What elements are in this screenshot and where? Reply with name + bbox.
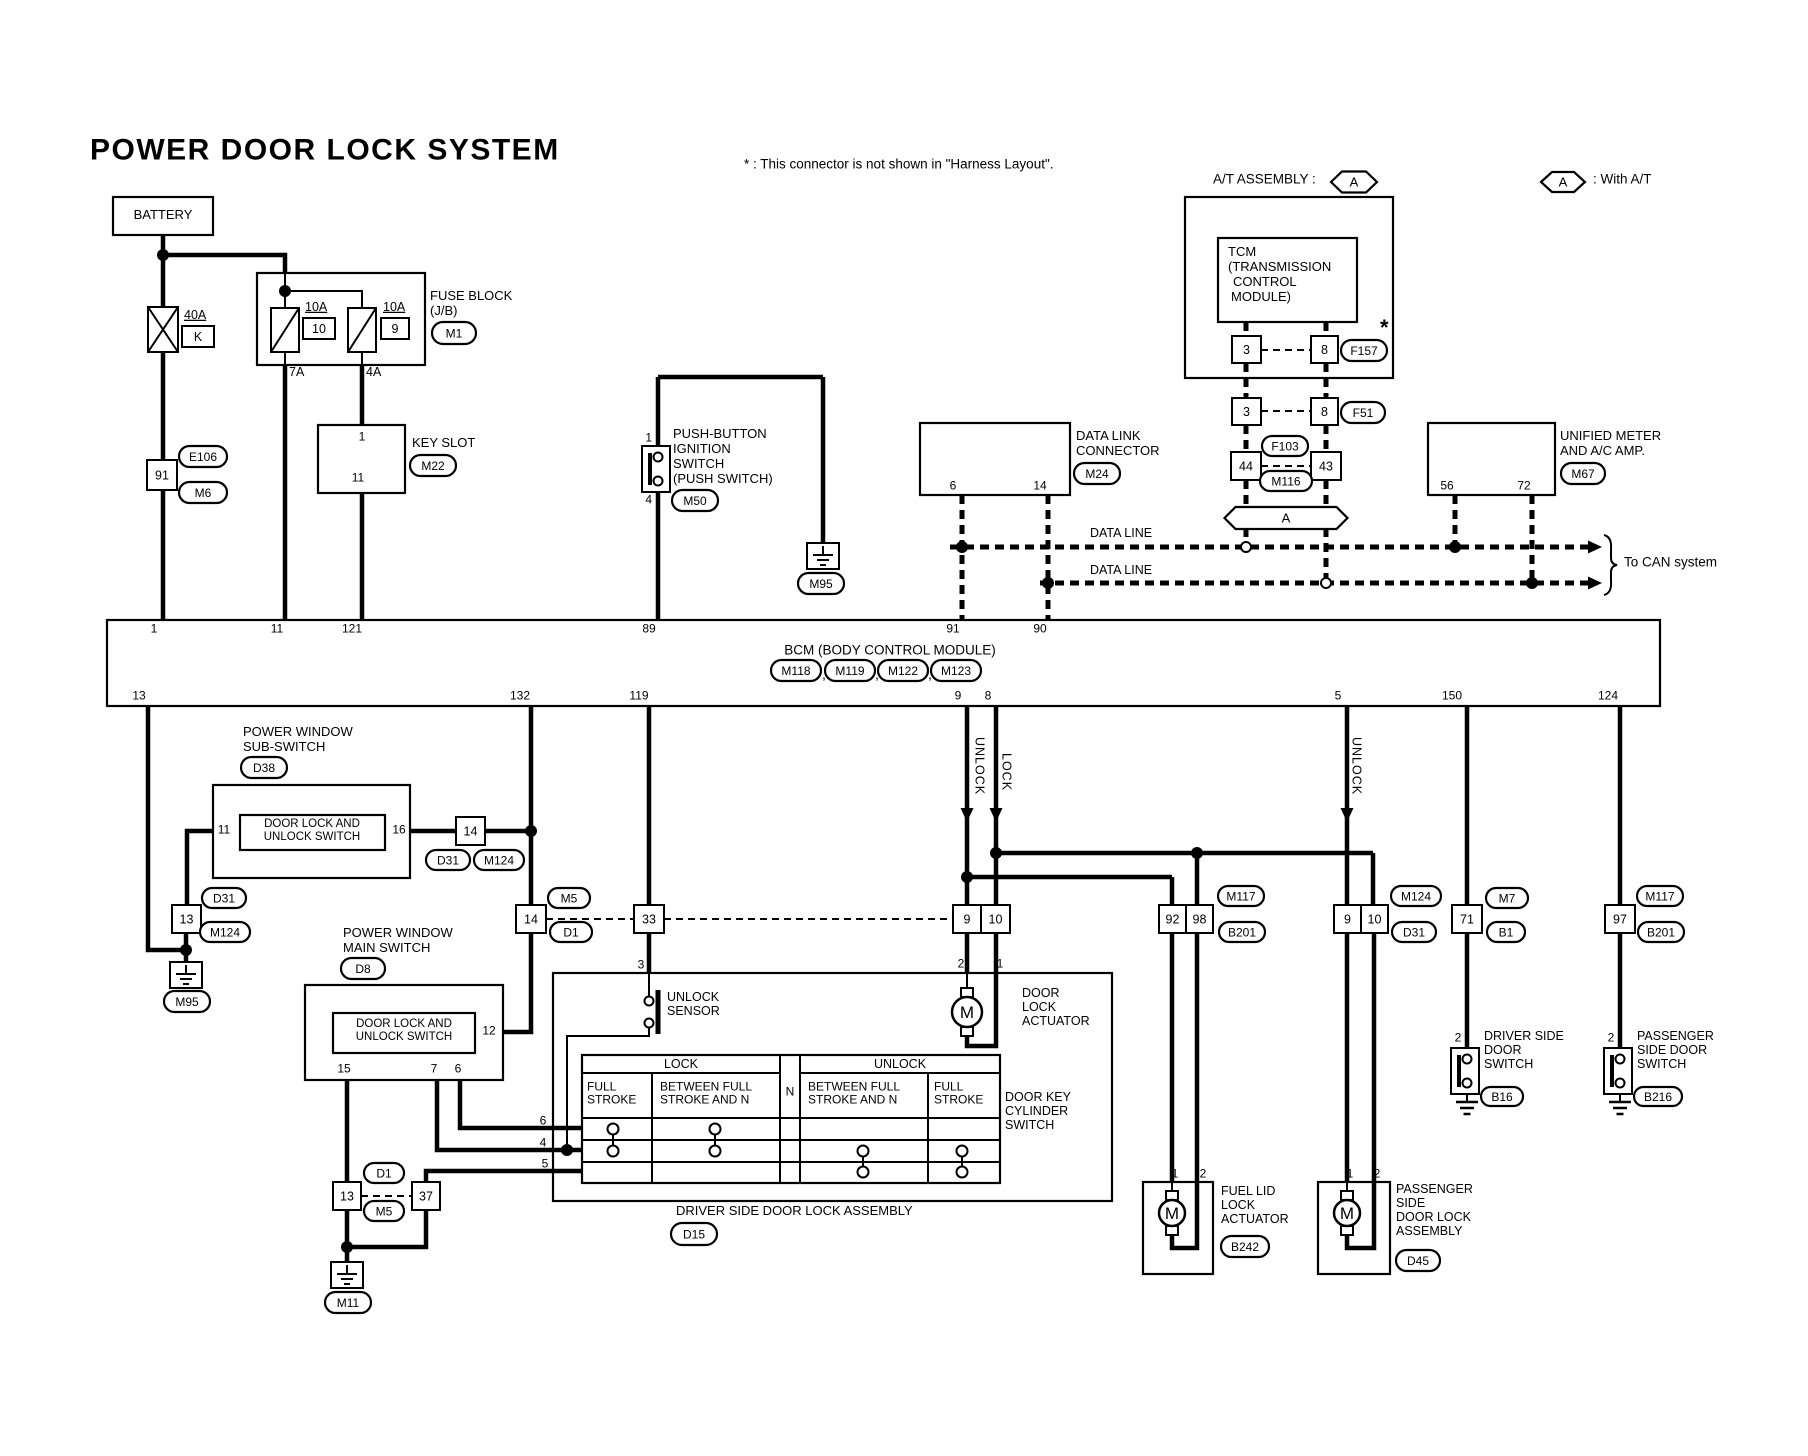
junction-dot-8 bbox=[956, 541, 968, 553]
text-49: STROKE bbox=[587, 1092, 636, 1106]
pin-box-label-43: 43 bbox=[1319, 460, 1333, 474]
connector-label-D45: D45 bbox=[1407, 1254, 1429, 1268]
connector-label-M117: M117 bbox=[1645, 890, 1674, 904]
text-99: 11 bbox=[218, 822, 231, 836]
wiring-diagram-page: K109913838444314131433910929891071971337… bbox=[0, 0, 1808, 1456]
text-40: UNLOCK SWITCH bbox=[356, 1031, 452, 1043]
battery-label: BATTERY bbox=[134, 207, 193, 222]
can-joint-2 bbox=[1321, 578, 1331, 588]
junction-dot-7 bbox=[1191, 847, 1203, 859]
passenger-door-lock-motor-label: M bbox=[1340, 1204, 1354, 1223]
text-56: STROKE bbox=[934, 1092, 983, 1106]
connector-label-M11: M11 bbox=[337, 1296, 360, 1310]
connector-label-M5: M5 bbox=[376, 1205, 393, 1219]
text-109: 4 bbox=[540, 1135, 547, 1149]
text-114: 2 bbox=[1374, 1166, 1381, 1180]
connector-label-M67: M67 bbox=[1571, 467, 1595, 481]
text-107: 1 bbox=[997, 956, 1004, 970]
arrow-right-3 bbox=[1588, 541, 1602, 554]
unlock-sensor-contact-2 bbox=[645, 1019, 654, 1028]
connector-label-D1: D1 bbox=[376, 1167, 392, 1181]
text-81: 91 bbox=[946, 621, 960, 635]
text-23: CONNECTOR bbox=[1076, 443, 1160, 458]
footnote: * : This connector is not shown in "Harn… bbox=[744, 157, 1054, 172]
pin-box-label-13: 13 bbox=[340, 1190, 354, 1204]
text-9: 10A bbox=[383, 300, 406, 314]
text-47: UNLOCK bbox=[874, 1057, 927, 1071]
text-89: 150 bbox=[1442, 688, 1462, 702]
text-88: 5 bbox=[1335, 688, 1342, 702]
connector-label-M117: M117 bbox=[1226, 890, 1255, 904]
pin-box-label-97: 97 bbox=[1613, 913, 1627, 927]
text-64: PASSENGER bbox=[1396, 1182, 1473, 1196]
text-44: LOCK bbox=[1022, 1000, 1057, 1014]
connector-label-M119: M119 bbox=[835, 664, 864, 678]
passenger-door-lock-motor-terminal-top bbox=[1341, 1191, 1353, 1200]
text-93: 1 bbox=[645, 430, 652, 444]
junction-dot-9 bbox=[1042, 577, 1054, 589]
bcm-label: BCM (BODY CONTROL MODULE) bbox=[784, 643, 996, 658]
connector-label-M123: M123 bbox=[941, 664, 971, 678]
data-link-connector-box bbox=[920, 423, 1070, 495]
push-button-ignition-switch-contact-2 bbox=[654, 477, 663, 486]
text-86: 9 bbox=[955, 688, 962, 702]
text-63: ACTUATOR bbox=[1221, 1212, 1289, 1226]
connector-label-M5: M5 bbox=[561, 892, 578, 906]
text-101: 12 bbox=[482, 1023, 496, 1037]
text-12: KEY SLOT bbox=[412, 435, 475, 450]
contact-circle-11 bbox=[957, 1167, 968, 1178]
pin-box-label-44: 44 bbox=[1239, 460, 1253, 474]
text-27: DATA LINE bbox=[1090, 563, 1152, 577]
text-42: SENSOR bbox=[667, 1004, 720, 1018]
at-hexagon-legend-label: A bbox=[1559, 175, 1568, 190]
connector-label-B201: B201 bbox=[1228, 926, 1256, 940]
text-33: POWER WINDOW bbox=[243, 724, 353, 739]
text-108: 6 bbox=[540, 1113, 547, 1127]
text-69: DOOR bbox=[1484, 1043, 1522, 1057]
diagram-canvas: K109913838444314131433910929891071971337… bbox=[0, 0, 1808, 1456]
pin-box-label-92: 92 bbox=[1166, 913, 1180, 927]
pin-box-label-10: 10 bbox=[989, 913, 1003, 927]
pin-box-label-37: 37 bbox=[419, 1190, 433, 1204]
driver-side-door-switch-contact-1 bbox=[1463, 1055, 1472, 1064]
wire-78 bbox=[460, 1080, 582, 1128]
connector-label-E106: E106 bbox=[189, 450, 217, 464]
text-105: 3 bbox=[638, 957, 645, 971]
text-11: 4A bbox=[366, 365, 382, 379]
wire-79 bbox=[426, 1171, 582, 1182]
text-18: (TRANSMISSION bbox=[1228, 259, 1331, 274]
text-43: DOOR bbox=[1022, 986, 1060, 1000]
connector-label-F51: F51 bbox=[1353, 406, 1374, 420]
pin-box-label-33: 33 bbox=[642, 913, 656, 927]
pin-box-label-3: 3 bbox=[1243, 343, 1250, 357]
text-53: BETWEEN FULL bbox=[808, 1079, 900, 1093]
text-34: SUB-SWITCH bbox=[243, 739, 325, 754]
pin-box-label-10: 10 bbox=[312, 322, 326, 336]
text-46: LOCK bbox=[664, 1057, 699, 1071]
contact-circle-7 bbox=[710, 1146, 721, 1157]
pin-box-label-98: 98 bbox=[1193, 913, 1207, 927]
connector-label-M50: M50 bbox=[683, 494, 707, 508]
text-48: FULL bbox=[587, 1079, 617, 1093]
arrow-right-4 bbox=[1588, 577, 1602, 590]
contact-circle-9 bbox=[957, 1146, 968, 1157]
text-90: 124 bbox=[1598, 688, 1618, 702]
connector-label-D1: D1 bbox=[563, 926, 579, 940]
text-15: SWITCH bbox=[673, 456, 724, 471]
pin-box-label-13: 13 bbox=[180, 913, 194, 927]
connector-label-M7: M7 bbox=[1499, 892, 1516, 906]
connector-label-D15: D15 bbox=[683, 1228, 705, 1242]
text-115: 2 bbox=[1455, 1030, 1462, 1044]
text-6: (J/B) bbox=[430, 303, 457, 318]
pin-box-label-91: 91 bbox=[155, 469, 169, 483]
text-84: 132 bbox=[510, 688, 530, 702]
connector-label-M118: M118 bbox=[781, 664, 810, 678]
pin-box-label-14: 14 bbox=[524, 913, 538, 927]
text-59: SWITCH bbox=[1005, 1118, 1054, 1132]
connector-label-B1: B1 bbox=[1499, 926, 1514, 940]
text-36: UNLOCK SWITCH bbox=[264, 831, 360, 843]
text-10: 7A bbox=[289, 365, 305, 379]
text-25: AND A/C AMP. bbox=[1560, 443, 1645, 458]
text-35: DOOR LOCK AND bbox=[264, 818, 360, 830]
connector-label-B216: B216 bbox=[1644, 1090, 1672, 1104]
arrow-down-1 bbox=[990, 808, 1003, 822]
at-hexagon-caption-label: A bbox=[1350, 175, 1359, 190]
text-85: 119 bbox=[629, 688, 648, 702]
text-77: 1 bbox=[151, 621, 158, 635]
text-113: 1 bbox=[1347, 1166, 1354, 1180]
junction-dot-10 bbox=[1449, 541, 1461, 553]
text-80: 89 bbox=[642, 621, 656, 635]
text-104: 6 bbox=[455, 1061, 462, 1075]
text-91: 1 bbox=[359, 429, 366, 443]
connector-label-M124: M124 bbox=[210, 926, 240, 940]
text-37: POWER WINDOW bbox=[343, 925, 453, 940]
junction-dot-1 bbox=[279, 285, 291, 297]
connector-label-M122: M122 bbox=[888, 664, 918, 678]
unlock-wire-label-2: UNLOCK bbox=[1349, 737, 1363, 795]
text-14: IGNITION bbox=[673, 441, 731, 456]
text-31: , bbox=[875, 666, 879, 682]
pin-box-label-9: 9 bbox=[392, 322, 399, 336]
text-13: PUSH-BUTTON bbox=[673, 426, 767, 441]
connector-label-B16: B16 bbox=[1491, 1090, 1513, 1104]
connector-label-M22: M22 bbox=[421, 459, 445, 473]
text-112: 2 bbox=[1200, 1166, 1207, 1180]
driver-door-lock-motor-terminal-bottom bbox=[961, 1027, 973, 1036]
text-65: SIDE bbox=[1396, 1196, 1425, 1210]
lock-wire-label: LOCK bbox=[999, 753, 1013, 791]
connector-label-M116: M116 bbox=[1271, 475, 1300, 489]
connector-label-M24: M24 bbox=[1085, 467, 1109, 481]
text-67: ASSEMBLY bbox=[1396, 1224, 1463, 1238]
connector-label-M1: M1 bbox=[446, 327, 463, 341]
text-50: BETWEEN FULL bbox=[660, 1079, 752, 1093]
connector-label-M95: M95 bbox=[175, 995, 199, 1009]
junction-dot-4 bbox=[341, 1241, 353, 1253]
text-7: 40A bbox=[184, 308, 207, 322]
text-55: FULL bbox=[934, 1079, 964, 1093]
text-57: DOOR KEY bbox=[1005, 1090, 1072, 1104]
unlock-sensor-contact-1 bbox=[645, 997, 654, 1006]
connector-label-M124: M124 bbox=[484, 854, 514, 868]
fuel-lid-lock-motor-label: M bbox=[1165, 1204, 1179, 1223]
contact-circle-8 bbox=[858, 1146, 869, 1157]
text-103: 7 bbox=[431, 1061, 438, 1075]
connector-label-D38: D38 bbox=[253, 761, 275, 775]
text-73: SWITCH bbox=[1637, 1057, 1686, 1071]
contact-circle-4 bbox=[608, 1124, 619, 1135]
contact-circle-6 bbox=[608, 1146, 619, 1157]
contact-circle-5 bbox=[710, 1124, 721, 1135]
text-82: 90 bbox=[1033, 621, 1047, 635]
connector-label-D31: D31 bbox=[1403, 926, 1425, 940]
text-5: FUSE BLOCK bbox=[430, 288, 513, 303]
text-111: 1 bbox=[1172, 1166, 1179, 1180]
contact-circle-10 bbox=[858, 1167, 869, 1178]
arrow-down-0 bbox=[961, 808, 974, 822]
connector-label-M95: M95 bbox=[809, 577, 833, 591]
wire-3 bbox=[163, 255, 285, 273]
text-30: , bbox=[822, 666, 826, 682]
text-28: To CAN system bbox=[1624, 555, 1717, 570]
fuel-lid-lock-motor-terminal-top bbox=[1166, 1191, 1178, 1200]
text-45: ACTUATOR bbox=[1022, 1014, 1090, 1028]
text-95: 6 bbox=[950, 478, 957, 492]
junction-dot-2 bbox=[525, 825, 537, 837]
junction-dot-11 bbox=[1526, 577, 1538, 589]
text-100: 16 bbox=[392, 822, 406, 836]
text-70: SWITCH bbox=[1484, 1057, 1533, 1071]
text-94: 4 bbox=[645, 492, 652, 506]
passenger-side-door-switch-contact-2 bbox=[1616, 1079, 1625, 1088]
junction-dot-0 bbox=[157, 249, 169, 261]
text-51: STROKE AND N bbox=[660, 1092, 749, 1106]
text-87: 8 bbox=[985, 688, 992, 702]
at-assembly-caption: A/T ASSEMBLY : bbox=[1213, 172, 1316, 187]
text-97: 56 bbox=[1440, 478, 1454, 492]
text-92: 11 bbox=[352, 470, 365, 484]
pin-box-label-9: 9 bbox=[964, 913, 971, 927]
text-58: CYLINDER bbox=[1005, 1104, 1068, 1118]
text-17: TCM bbox=[1228, 244, 1256, 259]
push-button-ignition-switch-contact-1 bbox=[654, 453, 663, 462]
connector-label-B242: B242 bbox=[1231, 1240, 1259, 1254]
pin-box-label-14: 14 bbox=[464, 825, 478, 839]
text-102: 15 bbox=[337, 1061, 351, 1075]
text-62: LOCK bbox=[1221, 1198, 1256, 1212]
text-41: UNLOCK bbox=[667, 990, 720, 1004]
page-title: POWER DOOR LOCK SYSTEM bbox=[90, 133, 560, 166]
text-71: PASSENGER bbox=[1637, 1029, 1714, 1043]
wire-40 bbox=[503, 933, 531, 1032]
arrow-down-2 bbox=[1341, 808, 1354, 822]
pin-box-label-9: 9 bbox=[1344, 913, 1351, 927]
driver-side-door-switch-contact-2 bbox=[1463, 1079, 1472, 1088]
passenger-door-lock-motor-terminal-bottom bbox=[1341, 1226, 1353, 1235]
text-52: N bbox=[786, 1084, 795, 1098]
junction-dot-6 bbox=[961, 871, 973, 883]
text-72: SIDE DOOR bbox=[1637, 1043, 1707, 1057]
connector-label-D31: D31 bbox=[437, 854, 459, 868]
text-8: 10A bbox=[305, 300, 328, 314]
junction-dot-5 bbox=[990, 847, 1002, 859]
text-39: DOOR LOCK AND bbox=[356, 1018, 452, 1030]
f157-asterisk: * bbox=[1380, 315, 1389, 340]
text-106: 2 bbox=[958, 956, 965, 970]
text-22: DATA LINK bbox=[1076, 428, 1141, 443]
text-61: FUEL LID bbox=[1221, 1184, 1275, 1198]
at-hexagon-big-label: A bbox=[1282, 511, 1291, 526]
pin-box-label-8: 8 bbox=[1321, 343, 1328, 357]
connector-label-B201: B201 bbox=[1647, 926, 1675, 940]
connector-label-D8: D8 bbox=[355, 962, 371, 976]
pin-box-label-10: 10 bbox=[1368, 913, 1382, 927]
junction-dot-12 bbox=[561, 1144, 573, 1156]
pin-box-label-71: 71 bbox=[1460, 913, 1474, 927]
junction-dot-3 bbox=[180, 944, 192, 956]
text-54: STROKE AND N bbox=[808, 1092, 897, 1106]
text-68: DRIVER SIDE bbox=[1484, 1029, 1564, 1043]
unlock-wire-label-1: UNLOCK bbox=[972, 737, 986, 795]
text-98: 72 bbox=[1517, 478, 1531, 492]
can-brace bbox=[1604, 535, 1617, 595]
driver-door-lock-motor-label: M bbox=[960, 1003, 974, 1022]
pin-box-label-8: 8 bbox=[1321, 405, 1328, 419]
text-66: DOOR LOCK bbox=[1396, 1210, 1472, 1224]
text-38: MAIN SWITCH bbox=[343, 940, 430, 955]
text-19: CONTROL bbox=[1233, 274, 1297, 289]
connector-label-F157: F157 bbox=[1350, 344, 1378, 358]
text-79: 121 bbox=[342, 621, 362, 635]
pin-box-label-K: K bbox=[194, 330, 203, 344]
text-110: 5 bbox=[542, 1156, 549, 1170]
text-20: MODULE) bbox=[1231, 289, 1291, 304]
driver-assembly-label: DRIVER SIDE DOOR LOCK ASSEMBLY bbox=[676, 1203, 913, 1218]
text-96: 14 bbox=[1033, 478, 1047, 492]
can-joint-1 bbox=[1241, 542, 1251, 552]
pin-box-label-3: 3 bbox=[1243, 405, 1250, 419]
connector-label-M124: M124 bbox=[1401, 890, 1431, 904]
connector-label-D31: D31 bbox=[213, 892, 235, 906]
text-78: 11 bbox=[271, 621, 284, 635]
driver-door-lock-motor-terminal-top bbox=[961, 988, 973, 997]
connector-label-M6: M6 bbox=[195, 486, 212, 500]
connector-label-F103: F103 bbox=[1271, 440, 1299, 454]
passenger-side-door-switch-contact-1 bbox=[1616, 1055, 1625, 1064]
text-16: (PUSH SWITCH) bbox=[673, 471, 773, 486]
with-at-legend: : With A/T bbox=[1593, 172, 1652, 187]
text-26: DATA LINE bbox=[1090, 526, 1152, 540]
text-24: UNIFIED METER bbox=[1560, 428, 1661, 443]
text-32: , bbox=[928, 666, 932, 682]
text-116: 2 bbox=[1608, 1030, 1615, 1044]
text-83: 13 bbox=[132, 688, 146, 702]
fuel-lid-lock-motor-terminal-bottom bbox=[1166, 1226, 1178, 1235]
